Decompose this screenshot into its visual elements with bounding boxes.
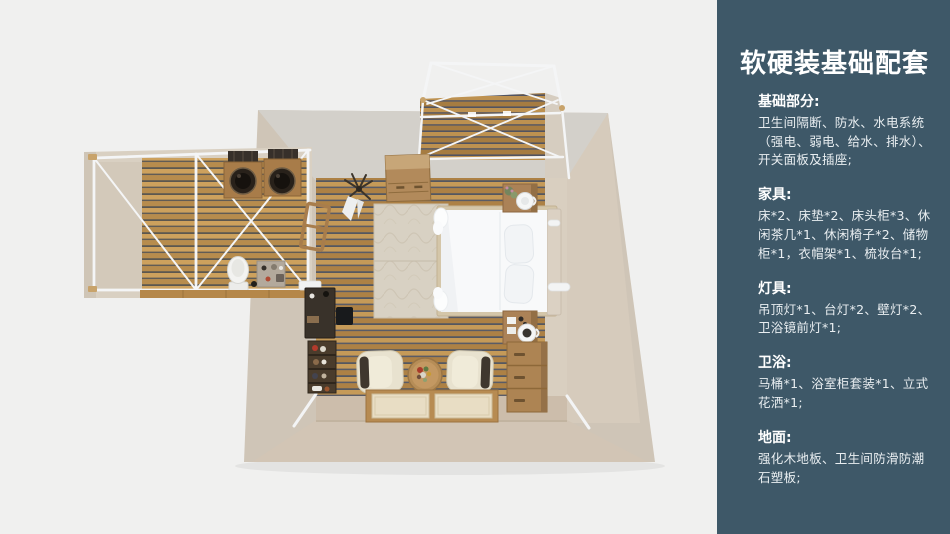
bathroom-porch [96, 162, 144, 290]
armchair-left [356, 350, 403, 394]
wall-lamp [548, 220, 560, 226]
spec-sections: 基础部分: 卫生间隔断、防水、水电系统（强电、弱电、给水、排水）、开关面板及插座… [740, 94, 936, 487]
stool [336, 307, 353, 325]
section-heading: 家具: [758, 187, 934, 203]
section-body: 床*2、床垫*2、床头柜*3、休闲茶几*1、休闲椅子*2、储物柜*1，衣帽架*1… [758, 207, 934, 263]
nightstand-bottom [503, 311, 539, 344]
section-body: 卫生间隔断、防水、水电系统（强电、弱电、给水、排水）、开关面板及插座; [758, 114, 934, 170]
section-lighting: 灯具: 吊顶灯*1、台灯*2、壁灯*2、卫浴镜前灯*1; [758, 281, 934, 339]
section-flooring: 地面: 强化木地板、卫生间防滑防潮石塑板; [758, 430, 934, 488]
section-heading: 灯具: [758, 281, 934, 297]
bathroom-threshold [140, 290, 310, 298]
armchair-right [446, 350, 493, 394]
dresser [507, 342, 547, 412]
section-body: 强化木地板、卫生间防滑防潮石塑板; [758, 450, 934, 488]
bathroom-wing [84, 147, 312, 298]
panel-title: 软硬装基础配套 [740, 50, 936, 80]
pillow [504, 264, 535, 304]
shoe-shelf [308, 341, 336, 393]
pillow [504, 224, 534, 263]
dressing-table [305, 288, 335, 338]
floorplan-render [0, 0, 718, 534]
wall-lamp [548, 283, 570, 291]
coffee-table [408, 358, 442, 392]
section-body: 马桶*1、浴室柜套装*1、立式花洒*1; [758, 375, 934, 413]
info-panel: 软硬装基础配套 基础部分: 卫生间隔断、防水、水电系统（强电、弱电、给水、排水）… [717, 0, 950, 534]
bed [433, 206, 561, 316]
toilet [228, 257, 249, 293]
section-body: 吊顶灯*1、台灯*2、壁灯*2、卫浴镜前灯*1; [758, 301, 934, 339]
storage-cabinet [385, 154, 431, 202]
section-heading: 卫浴: [758, 355, 934, 371]
platform-mats [366, 390, 498, 422]
section-furniture: 家具: 床*2、床垫*2、床头柜*3、休闲茶几*1、休闲椅子*2、储物柜*1，衣… [758, 187, 934, 263]
section-heading: 基础部分: [758, 94, 934, 110]
section-bathroom: 卫浴: 马桶*1、浴室柜套装*1、立式花洒*1; [758, 355, 934, 413]
nightstand-top [503, 184, 537, 212]
section-basics: 基础部分: 卫生间隔断、防水、水电系统（强电、弱电、给水、排水）、开关面板及插座… [758, 94, 934, 170]
section-heading: 地面: [758, 430, 934, 446]
slide-canvas: 软硬装基础配套 基础部分: 卫生间隔断、防水、水电系统（强电、弱电、给水、排水）… [0, 0, 950, 534]
